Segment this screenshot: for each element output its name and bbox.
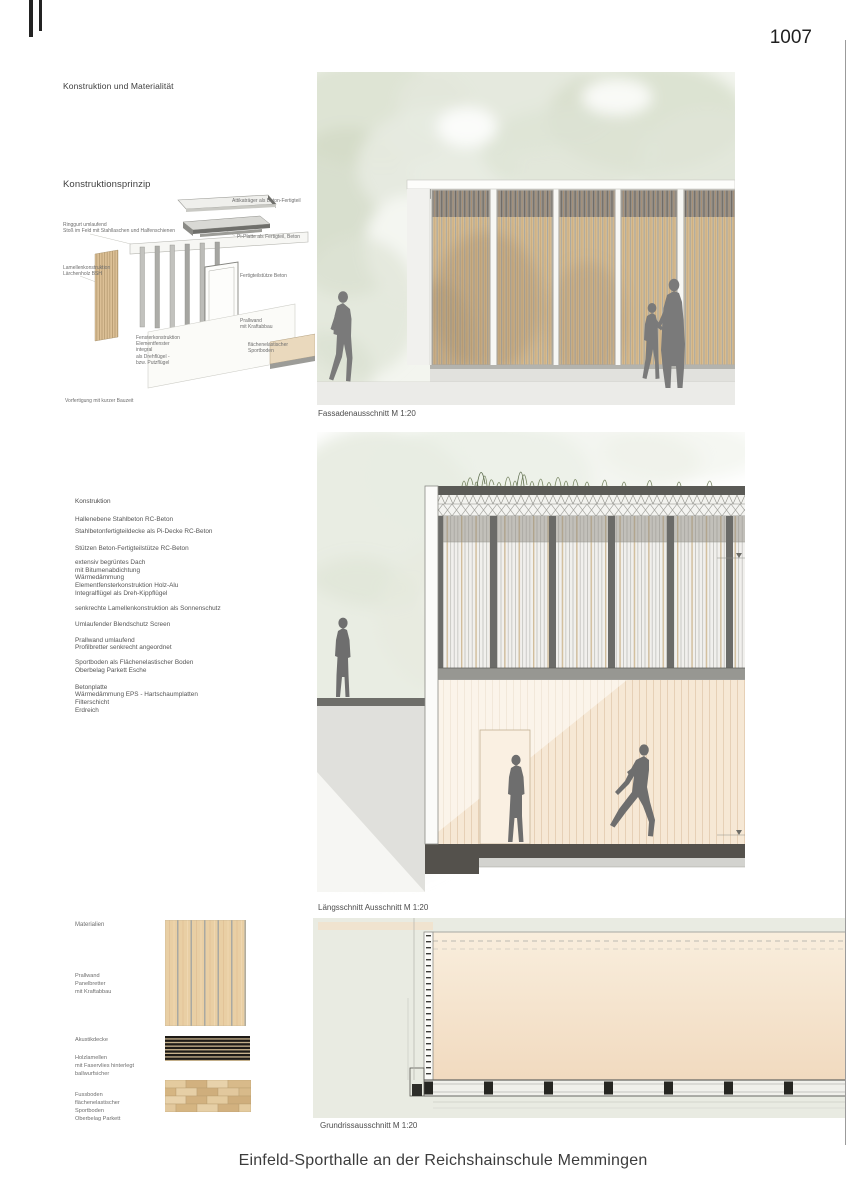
konstruktion-paragraph: Stahlbetonfertigteildecke als Pi-Decke R… bbox=[75, 528, 307, 536]
floor-plan bbox=[313, 918, 845, 1118]
side-wall-return bbox=[407, 189, 430, 365]
caption-fassadenausschnitt: Fassadenausschnitt M 1:20 bbox=[318, 409, 416, 418]
ceiling-truss-band bbox=[438, 504, 745, 516]
konstruktion-paragraph: senkrechte Lamellenkonstruktion als Sonn… bbox=[75, 605, 307, 613]
page-number: 1007 bbox=[770, 27, 812, 49]
caption-laengsschnitt: Längsschnitt Ausschnitt M 1:20 bbox=[318, 903, 428, 912]
hall-floor bbox=[433, 932, 845, 1080]
material-label-fussboden: Fussboden flächenelastischer Sportboden … bbox=[75, 1091, 120, 1123]
base-shadow-line bbox=[430, 365, 735, 369]
konstruktion-paragraph: Sportboden als Flächenelastischer Boden … bbox=[75, 659, 307, 674]
material-swatch-prallwand bbox=[165, 920, 246, 1026]
plinth-band bbox=[430, 369, 735, 382]
louver-bays bbox=[402, 190, 735, 392]
ring-beam bbox=[425, 668, 745, 680]
material-label-holzlamellen: Holzlamellen mit Faservlies hinterlegt b… bbox=[75, 1054, 134, 1078]
material-label-akustikdecke: Akustikdecke bbox=[75, 1037, 108, 1043]
label-fensterkonstruktion: Fensterkonstruktion Elementfenster integ… bbox=[136, 335, 180, 366]
facade-rendering bbox=[317, 72, 735, 405]
label-prallwand: Prallwand mit Kraftabbau bbox=[240, 318, 273, 330]
label-fertigteilstuetze: Fertigteilstütze Beton bbox=[240, 273, 287, 279]
label-ringgurt: Ringgurt umlaufend Stoß im Feld mit Stah… bbox=[63, 222, 175, 234]
binding-mark-2 bbox=[39, 0, 42, 31]
sports-hall-facade bbox=[402, 180, 735, 392]
presentation-sheet: { "page": { "number": "1007", "title": "… bbox=[0, 0, 849, 1200]
label-attika: Attikaträger als Beton-Fertigteil bbox=[232, 198, 301, 204]
label-vorfertigung: Vorfertigung mit kurzer Bauzeit bbox=[65, 398, 133, 404]
roof-slab bbox=[425, 486, 745, 495]
konstruktion-paragraph: Stützen Beton-Fertigteilstütze RC-Beton bbox=[75, 545, 307, 553]
roof-insulation bbox=[425, 495, 745, 504]
fascia-band bbox=[407, 180, 735, 189]
label-pi-platte: Pi-Platte als Fertigteil, Beton bbox=[237, 234, 300, 240]
facade-column-cut bbox=[425, 486, 438, 844]
hall-section bbox=[425, 486, 745, 874]
konstruktion-paragraph: Prallwand umlaufend Profilbretter senkre… bbox=[75, 637, 307, 652]
konstruktion-paragraph: extensiv begrüntes Dach mit Bitumenabdic… bbox=[75, 559, 307, 598]
ground-band bbox=[317, 382, 735, 405]
konstruktion-text-block: Konstruktion Hallenebene Stahlbeton RC-B… bbox=[75, 498, 307, 714]
section-heading-konstruktion-materialitaet: Konstruktion und Materialität bbox=[63, 81, 174, 91]
section-heading-konstruktionsprinzip: Konstruktionsprinzip bbox=[63, 179, 151, 190]
konstruktion-paragraph: Betonplatte Wärmedämmung EPS - Hartschau… bbox=[75, 684, 307, 715]
upper-wall-strip bbox=[318, 922, 433, 930]
axonometric-diagram: Attikaträger als Beton-Fertigteil Pi-Pla… bbox=[60, 192, 315, 414]
caption-grundriss: Grundrissausschnitt M 1:20 bbox=[320, 1121, 417, 1130]
konstruktion-paragraph: Hallenebene Stahlbeton RC-Beton bbox=[75, 516, 307, 524]
konstruktion-paragraph: Umlaufender Blendschutz Screen bbox=[75, 621, 307, 629]
label-lamellen: Lamellenkonstruktion Lärchenholz BSH bbox=[63, 265, 110, 277]
material-label-prallwand: Prallwand Panelbretter mit Kraftabbau bbox=[75, 972, 111, 996]
materialien-heading: Materialien bbox=[75, 922, 104, 928]
longitudinal-section bbox=[317, 432, 745, 894]
label-sportboden: flächenelastischer Sportboden bbox=[248, 342, 315, 354]
binding-mark-1 bbox=[29, 0, 33, 37]
glazed-facade-lamellen bbox=[438, 516, 745, 668]
sheet-title: Einfeld-Sporthalle an der Reichshainschu… bbox=[239, 1152, 648, 1170]
left-wall bbox=[424, 932, 433, 1080]
material-swatch-akustikdecke bbox=[165, 1036, 250, 1061]
sheet-edge-line bbox=[845, 40, 846, 1145]
lamellen-panel bbox=[95, 250, 118, 341]
konstruktion-heading: Konstruktion bbox=[75, 498, 307, 506]
material-swatch-parkett bbox=[165, 1080, 251, 1112]
bottom-wall bbox=[424, 1080, 845, 1096]
prallwand-interior bbox=[438, 680, 745, 844]
exterior-ground bbox=[317, 698, 425, 892]
